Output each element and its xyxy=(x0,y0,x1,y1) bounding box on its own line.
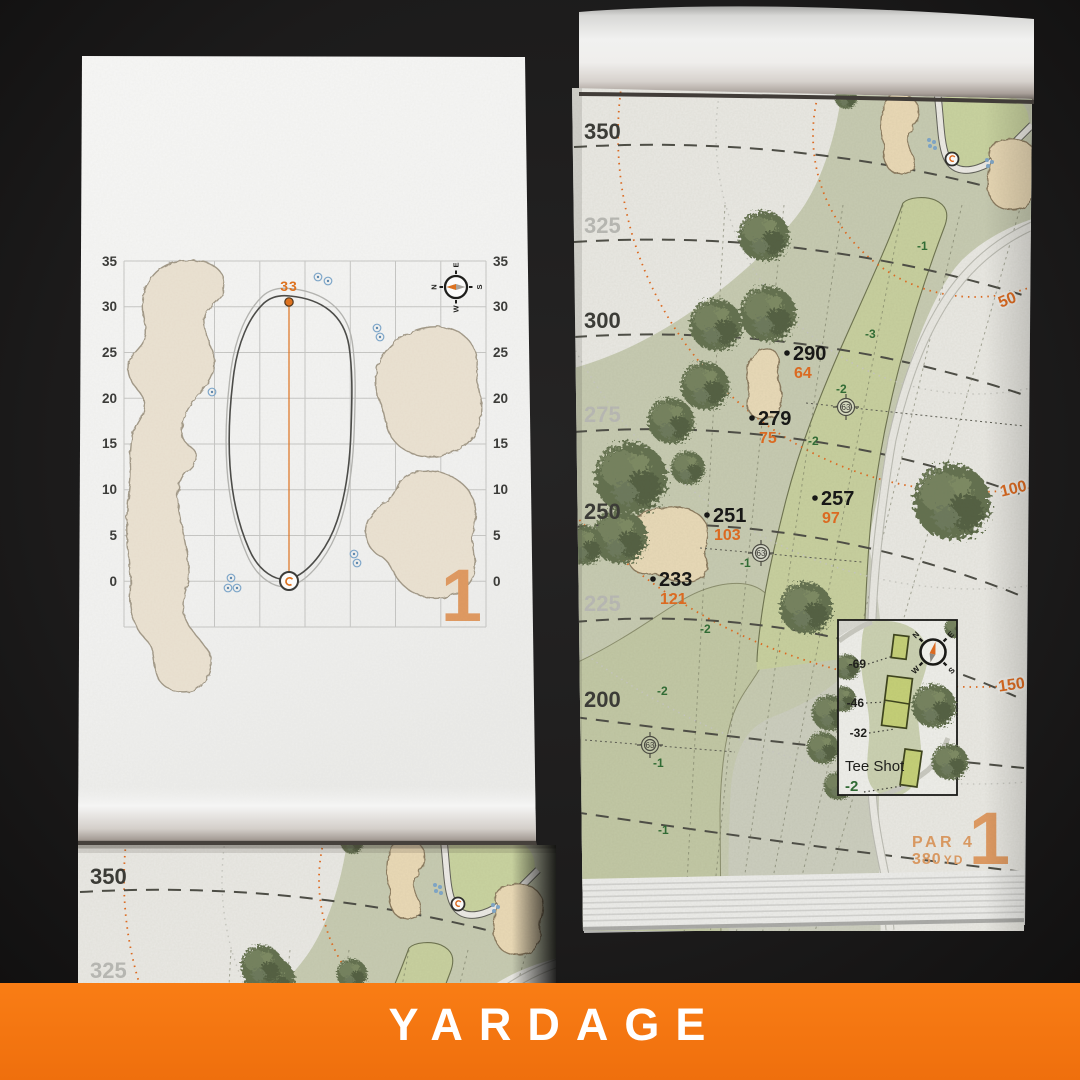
svg-text:YARDAGE: YARDAGE xyxy=(389,999,722,1050)
